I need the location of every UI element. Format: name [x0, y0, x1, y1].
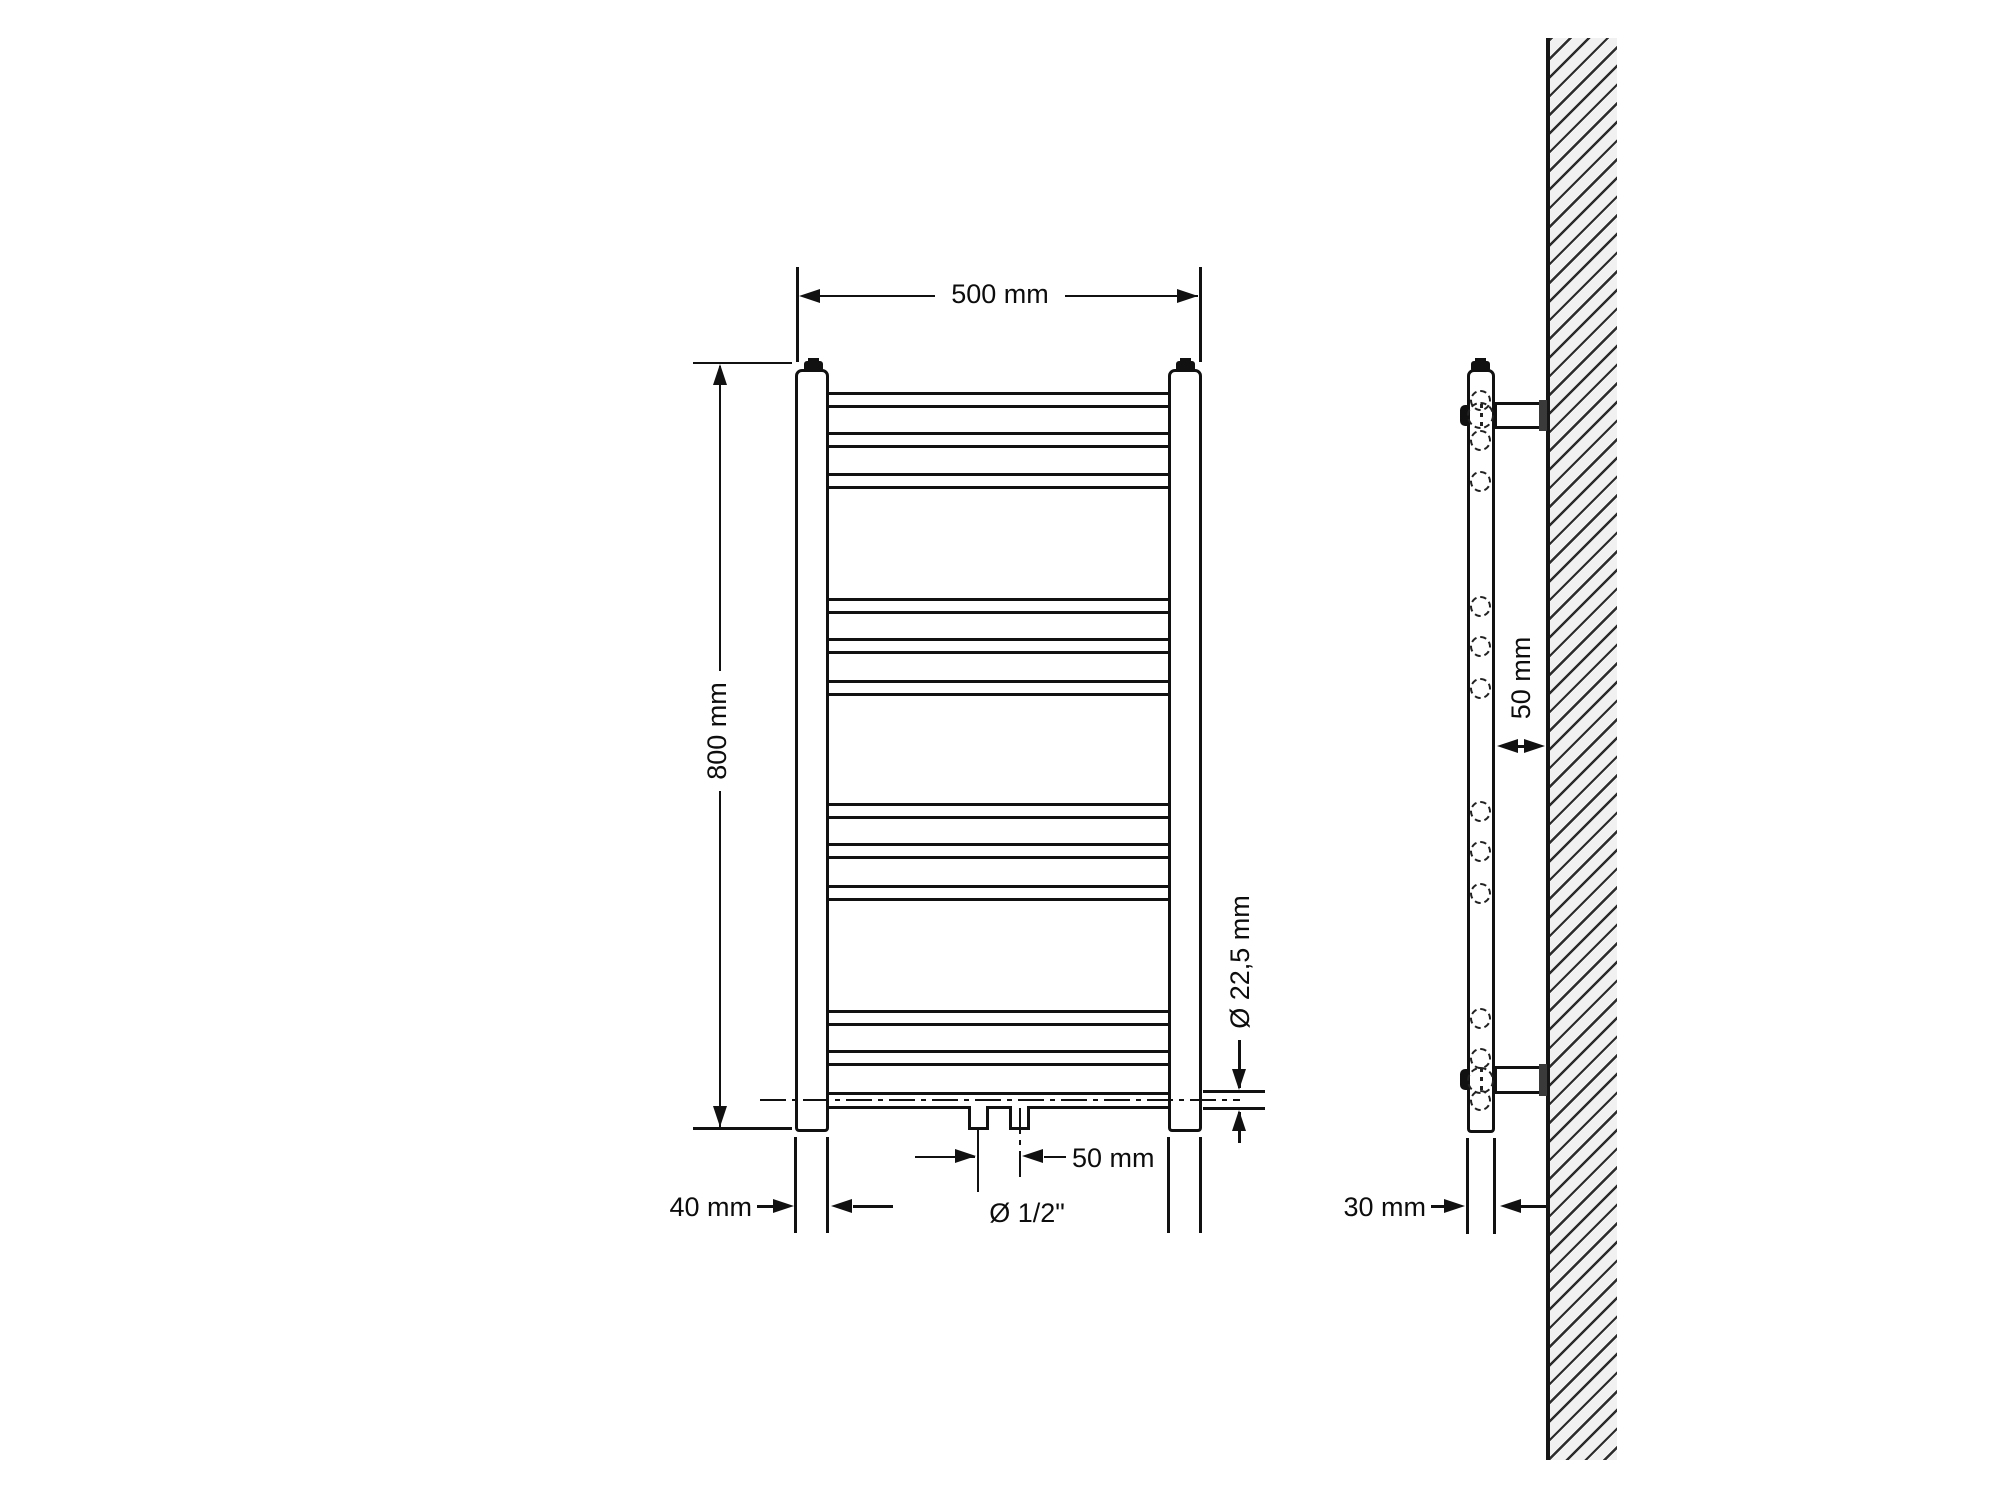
dim-arrow-up	[1232, 1110, 1246, 1131]
dim-arrow-left	[799, 289, 820, 303]
dim-arrow-left	[831, 1199, 852, 1213]
radiator-column-right	[1168, 369, 1202, 1132]
connection-fitting-left	[968, 1106, 989, 1130]
dim-arrow-left	[1500, 1199, 1521, 1213]
hidden-screw-line	[1480, 1068, 1483, 1092]
hidden-tube-circle	[1470, 430, 1491, 451]
hidden-screw-line	[1480, 404, 1483, 428]
dim-arrow-right	[955, 1149, 976, 1163]
radiator-column-left	[795, 369, 829, 1132]
tube-diameter-label: Ø 22,5 mm	[1225, 887, 1255, 1037]
hidden-tube-circle	[1470, 883, 1491, 904]
pipe-width-label: 30 mm	[1334, 1192, 1426, 1222]
dim-arrow-right	[1524, 739, 1545, 753]
wall-hatched-section	[1546, 38, 1617, 1460]
side-view: 50 mm 30 mm	[0, 0, 1998, 1498]
hidden-tube-circle	[1470, 801, 1491, 822]
column-end-cap	[804, 361, 823, 370]
column-end-cap	[1471, 361, 1490, 370]
hidden-tube-circle	[1470, 1008, 1491, 1029]
height-dim-label: 800 mm	[702, 671, 732, 791]
hidden-tube-circle	[1470, 636, 1491, 657]
connection-thread-label: Ø 1/2"	[967, 1198, 1087, 1228]
wall-distance-label: 50 mm	[1506, 623, 1536, 733]
dim-arrow-left	[1022, 1149, 1043, 1163]
collector-centerline	[760, 1099, 1240, 1102]
connection-centerline	[1019, 1108, 1022, 1183]
dim-arrow-right	[1444, 1199, 1465, 1213]
supply-pipe-line	[1493, 1138, 1496, 1234]
connection-spacing-label: 50 mm	[1072, 1143, 1155, 1173]
hidden-tube-circle	[1470, 1090, 1491, 1111]
dim-arrow-right	[1177, 289, 1198, 303]
dim-arrow-up	[713, 364, 727, 385]
dim-arrow-left	[1497, 739, 1518, 753]
column-end-cap	[1176, 361, 1195, 370]
hidden-tube-circle	[1470, 1048, 1491, 1069]
dim-arrow-right	[773, 1199, 794, 1213]
technical-drawing: 500 mm 800 mm Ø 22,5 mm 50 mm 40 mm Ø 1/…	[0, 0, 1998, 1498]
hidden-tube-circle	[1470, 471, 1491, 492]
hidden-tube-circle	[1470, 596, 1491, 617]
width-dim-label: 500 mm	[935, 279, 1065, 309]
wall-bracket-lower-plate	[1539, 1064, 1547, 1096]
hidden-tube-circle	[1470, 841, 1491, 862]
dim-arrow-down	[1232, 1069, 1246, 1090]
hidden-tube-circle	[1470, 678, 1491, 699]
wall-bracket-upper-plate	[1539, 400, 1547, 431]
supply-pipe-line	[1466, 1138, 1469, 1234]
column-width-label: 40 mm	[660, 1192, 752, 1222]
dim-arrow-down	[713, 1106, 727, 1127]
